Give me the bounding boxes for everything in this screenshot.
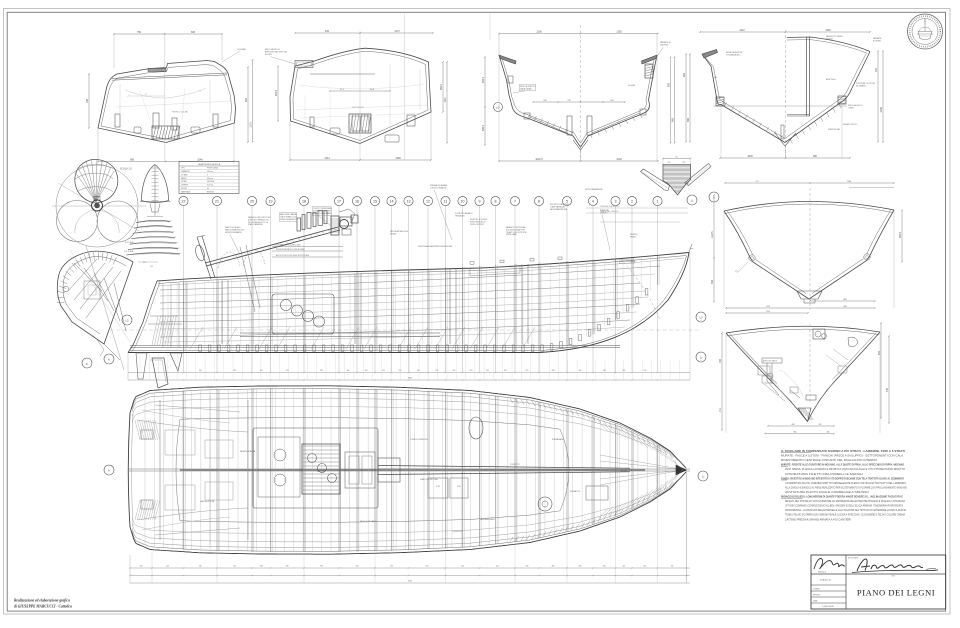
svg-text:15: 15	[373, 200, 377, 204]
svg-text:Ts-60 BML: Ts-60 BML	[237, 49, 246, 51]
svg-text:CATENA: CATENA	[620, 470, 628, 473]
svg-text:PIANO DEI LEGNI: PIANO DEI LEGNI	[857, 588, 935, 598]
svg-text:258: 258	[622, 370, 625, 372]
svg-text:1008: 1008	[880, 107, 883, 113]
svg-text:SALDOBRAZZATURA: SALDOBRAZZATURA	[550, 208, 568, 211]
svg-text:3: 3	[615, 200, 617, 204]
svg-text:RILIEVO DEL PONTELLO CON GIUNZ: RILIEVO DEL PONTELLO CON GIUNZIONE ALL'E…	[785, 500, 905, 503]
svg-text:825: 825	[245, 97, 248, 102]
svg-text:13: 13	[407, 200, 411, 204]
svg-text:60 A RICH.: 60 A RICH.	[660, 43, 669, 46]
svg-text:590 mm: 590 mm	[207, 171, 214, 173]
svg-text:260: 260	[356, 565, 359, 567]
svg-text:605.5: 605.5	[482, 124, 485, 131]
svg-text:PROPULSIVA: PROPULSIVA	[207, 167, 219, 170]
svg-text:B 20: B 20	[457, 486, 461, 488]
svg-text:MOTORE: MOTORE	[317, 471, 326, 473]
svg-text:COMPL.: COMPL.	[848, 107, 855, 109]
svg-text:2: 2	[631, 200, 633, 204]
svg-text:202: 202	[504, 370, 507, 372]
svg-text:PROFILI RIPORTI: PROFILI RIPORTI	[470, 224, 484, 226]
svg-text:16: 16	[355, 200, 359, 204]
svg-text:PIANO DEL MOTORE: PIANO DEL MOTORE	[420, 478, 439, 481]
svg-text:PARATIA STAGNA: PARATIA STAGNA	[240, 450, 256, 453]
svg-text:VETRORESINA - LUCIDATURA DELLE: VETRORESINA - LUCIDATURA DELLE PANNELLE …	[785, 509, 906, 512]
svg-text:340: 340	[286, 565, 289, 567]
svg-text:PRESOLANA: PRESOLANA	[506, 233, 517, 236]
svg-text:S.1.2 A-A: S.1.2 A-A	[125, 241, 134, 244]
svg-text:230: 230	[199, 565, 202, 567]
svg-text:936.5: 936.5	[843, 299, 847, 301]
svg-text:287: 287	[286, 370, 289, 372]
svg-text:DISEGN.: DISEGN.	[813, 588, 820, 590]
svg-text:1220: 1220	[766, 311, 770, 313]
svg-text:130: 130	[150, 266, 153, 268]
svg-text:596: 596	[687, 117, 690, 122]
svg-text:8230: 8230	[408, 581, 412, 583]
svg-text:980: 980	[320, 565, 323, 567]
svg-text:10: 10	[461, 200, 465, 204]
svg-text:MOBILE: MOBILE	[390, 233, 397, 235]
svg-text:CON SUCCHIAROLA: CON SUCCHIAROLA	[430, 186, 447, 189]
svg-text:TIPO: TIPO	[181, 168, 186, 170]
svg-text:225: 225	[435, 370, 438, 372]
svg-text:MURATE: FISSATE ALLE OSSATURE: MURATE: FISSATE ALLE OSSATURE IN MOGANO,…	[781, 464, 904, 467]
svg-text:1040.5: 1040.5	[535, 158, 543, 161]
svg-text:202: 202	[486, 370, 489, 372]
svg-text:VIREMO CON PIL.: VIREMO CON PIL.	[843, 124, 858, 126]
svg-text:LG: LG	[125, 320, 128, 323]
svg-text:TUGA SCORREVOLE: TUGA SCORREVOLE	[410, 438, 429, 441]
svg-text:1273: 1273	[249, 122, 252, 128]
svg-text:9: 9	[479, 200, 481, 204]
svg-text:260: 260	[603, 565, 606, 567]
svg-text:80=DIAM.: 80=DIAM.	[628, 84, 636, 87]
svg-text:POGGIA: POGGIA	[826, 37, 834, 40]
svg-text:MATERIALE: MATERIALE	[181, 190, 191, 193]
svg-text:325: 325	[579, 370, 582, 372]
svg-text:STARO LAMIERINI: STARO LAMIERINI	[248, 223, 263, 226]
svg-text:PROFILO COLMA: PROFILO COLMA	[172, 111, 188, 114]
svg-text:SFIATO: SFIATO	[630, 235, 637, 238]
svg-text:19: 19	[269, 200, 273, 204]
svg-text:APPROV.: APPROV.	[813, 593, 821, 596]
svg-text:MURATE - FASCE A LISTONI - F: MURATE - FASCE A LISTONI - FIANCHI (FASC…	[781, 455, 904, 458]
svg-text:PRESS GUARNIZIONI: PRESS GUARNIZIONI	[280, 218, 298, 221]
svg-text:N° PALE: N° PALE	[181, 173, 188, 176]
svg-text:984.5: 984.5	[440, 83, 443, 90]
svg-text:380: 380	[552, 565, 555, 567]
svg-text:340: 340	[827, 431, 830, 433]
svg-text:FONDO: RIVESTITO IN MOGANO INT: FONDO: RIVESTITO IN MOGANO INTESTATO A V…	[781, 477, 904, 480]
svg-text:SCALA 1:10: SCALA 1:10	[820, 579, 832, 582]
svg-text:448: 448	[886, 387, 889, 392]
svg-text:S.1.2 A-A: S.1.2 A-A	[124, 250, 134, 253]
svg-text:640: 640	[140, 565, 143, 567]
svg-text:271: 271	[755, 181, 758, 183]
svg-text:628: 628	[683, 72, 686, 77]
svg-text:MOZZO: MOZZO	[181, 188, 188, 190]
svg-text:1119.5: 1119.5	[711, 231, 714, 239]
svg-text:202: 202	[470, 370, 473, 372]
svg-text:1: 1	[657, 200, 659, 204]
svg-text:12: 12	[426, 200, 430, 204]
svg-text:196: 196	[643, 370, 646, 372]
svg-text:608: 608	[792, 424, 795, 426]
svg-text:CHIODATURA FILETTI FRA POMELLI: CHIODATURA FILETTI FRA POMELLI E MANALI	[785, 473, 864, 476]
svg-text:300: 300	[347, 370, 350, 372]
svg-text:PRESA MARE: PRESA MARE	[552, 438, 564, 441]
svg-text:420: 420	[496, 565, 499, 567]
svg-text:600: 600	[714, 77, 717, 79]
svg-text:SUPERF.: SUPERF.	[181, 185, 189, 187]
svg-text:22: 22	[182, 200, 186, 204]
svg-text:SERVIZIO A BINARIO: SERVIZIO A BINARIO	[225, 231, 242, 234]
svg-text:728: 728	[719, 358, 722, 363]
svg-text:250: 250	[461, 565, 464, 567]
svg-text:1046: 1046	[197, 158, 203, 161]
svg-text:943: 943	[325, 30, 330, 33]
svg-text:UNA ALLEGATI: UNA ALLEGATI	[520, 87, 532, 90]
svg-text:1040: 1040	[843, 306, 847, 308]
svg-text:VITI DEI COMANDI COMPLESSIVO: VITI DEI COMANDI COMPLESSIVO AL BOLI PAS…	[785, 505, 903, 508]
svg-text:980: 980	[813, 155, 818, 158]
svg-text:194: 194	[382, 370, 385, 372]
svg-text:252: 252	[233, 370, 236, 372]
svg-text:CORRIDOIO: CORRIDOIO	[452, 531, 463, 533]
svg-text:787: 787	[875, 67, 878, 72]
svg-text:194: 194	[365, 370, 368, 372]
svg-text:BRONZO: BRONZO	[207, 191, 215, 193]
svg-text:RIVESTIMENTO CENTRALE: FINCANT: RIVESTIMENTO CENTRALE: FINCANTI DEL PAGL…	[781, 459, 877, 462]
svg-text:PAGLIOLATO AMOV.: PAGLIOLATO AMOV.	[360, 520, 378, 523]
svg-text:B 32: B 32	[436, 486, 440, 488]
svg-text:870: 870	[878, 350, 881, 355]
svg-text:267: 267	[260, 370, 263, 372]
svg-text:LG: LG	[699, 317, 702, 320]
svg-text:319: 319	[819, 424, 822, 426]
svg-text:SERBATOIO: SERBATOIO	[570, 490, 581, 493]
svg-text:430: 430	[671, 565, 674, 567]
svg-text:210: 210	[199, 370, 202, 372]
svg-text:1369: 1369	[825, 29, 831, 32]
svg-text:300: 300	[579, 565, 582, 567]
svg-text:36.5: 36.5	[668, 162, 671, 164]
svg-text:IN LEGNO: IN LEGNO	[873, 40, 882, 42]
svg-text:FILO AVANTI: FILO AVANTI	[856, 84, 866, 87]
svg-text:18: 18	[302, 200, 306, 204]
svg-text:POZZETTO: POZZETTO	[510, 464, 520, 466]
svg-text:985: 985	[130, 158, 135, 161]
svg-text:1380: 1380	[395, 157, 401, 160]
svg-text:210: 210	[417, 370, 420, 372]
svg-text:5: 5	[566, 200, 568, 204]
svg-text:750: 750	[137, 31, 142, 34]
svg-text:7: 7	[514, 200, 516, 204]
svg-text:1342: 1342	[739, 29, 745, 32]
svg-text:250: 250	[390, 565, 393, 567]
svg-text:710: 710	[567, 100, 570, 102]
svg-text:38.7: 38.7	[683, 162, 686, 164]
svg-text:ROTAZ.: ROTAZ.	[181, 180, 188, 183]
svg-text:PASSO: PASSO	[181, 177, 187, 180]
svg-text:530 mm: 530 mm	[207, 178, 214, 180]
svg-text:587.5: 587.5	[899, 231, 902, 238]
svg-text:200: 200	[622, 565, 625, 567]
svg-text:1001: 1001	[444, 97, 447, 103]
svg-text:545: 545	[543, 100, 546, 102]
svg-text:84: 84	[676, 156, 678, 158]
svg-text:TENDA TELAIO SCORREVOLE CAREN: TENDA TELAIO SCORREVOLE CARENA FINALE LU…	[785, 514, 905, 517]
svg-text:TENDALINO: TENDALINO	[455, 214, 465, 217]
svg-text:210: 210	[399, 370, 402, 372]
svg-text:6: 6	[538, 200, 540, 204]
svg-text:ALLA CHIGLIA E BASOLO AL PIEDE: ALLA CHIGLIA E BASOLO AL PIEDE REALIZZAT…	[785, 486, 907, 489]
svg-text:1760: 1760	[259, 565, 263, 567]
svg-text:711: 711	[719, 407, 722, 411]
svg-text:PIAZZONI CAB.: PIAZZONI CAB.	[828, 128, 841, 131]
svg-text:907.5: 907.5	[275, 89, 278, 96]
svg-text:861: 861	[794, 431, 797, 433]
svg-text:1272: 1272	[394, 30, 400, 33]
svg-text:LATTINE PRESINA GRAND ARMATA A: LATTINE PRESINA GRAND ARMATA A PIU CANTI…	[785, 518, 851, 521]
svg-text:1090: 1090	[616, 158, 622, 161]
svg-text:4: 4	[592, 200, 594, 204]
svg-text:25/27 SPESS. PLANCIA LAVORATA: 25/27 SPESS. PLANCIA LAVORATA E RIFINITA…	[785, 468, 905, 471]
svg-text:DI GUARDIA LATO: DI GUARDIA LATO	[726, 53, 741, 56]
svg-text:310: 310	[603, 370, 606, 372]
svg-text:430: 430	[526, 565, 529, 567]
svg-text:1005: 1005	[747, 155, 753, 158]
svg-text:8: 8	[495, 200, 497, 204]
svg-text:2.4: 2.4	[199, 91, 201, 93]
svg-text:LG: LG	[496, 105, 499, 109]
svg-text:1344: 1344	[324, 157, 330, 160]
svg-text:ASTA TS=50: ASTA TS=50	[826, 78, 836, 81]
svg-text:202: 202	[453, 370, 456, 372]
svg-text:11: 11	[444, 200, 448, 204]
svg-text:946.5: 946.5	[482, 76, 485, 83]
svg-text:9-9601-29648: 9-9601-29648	[822, 606, 833, 608]
svg-text:1206: 1206	[536, 30, 542, 33]
svg-text:280: 280	[552, 370, 555, 372]
svg-text:di GIUSEPPE MARCUCCI - Cattoli: di GIUSEPPE MARCUCCI - Cattolica	[14, 605, 72, 609]
svg-text:DIAMETRO: DIAMETRO	[181, 170, 191, 173]
svg-text:17: 17	[337, 200, 341, 204]
svg-text:FASCIA MOGANO: FASCIA MOGANO	[480, 518, 496, 521]
svg-text:2.2: 2.2	[145, 94, 147, 96]
svg-text:900: 900	[667, 82, 670, 87]
svg-text:VETRO PARABREZZA: VETRO PARABREZZA	[585, 188, 603, 191]
svg-text:965: 965	[671, 117, 674, 122]
svg-text:1220: 1220	[766, 306, 770, 308]
svg-text:ASBESTOS BLOMBERG: ASBESTOS BLOMBERG	[313, 212, 333, 215]
svg-text:618: 618	[610, 100, 613, 102]
svg-text:3: 3	[207, 174, 208, 176]
svg-text:GAVONE POPPA: GAVONE POPPA	[200, 500, 215, 503]
svg-text:200: 200	[166, 565, 169, 567]
svg-text:Realizzazione ed elaborazione: Realizzazione ed elaborazione grafica	[14, 599, 70, 603]
svg-text:798: 798	[86, 98, 89, 103]
svg-text:CARATTERISTICHE ELICA: CARATTERISTICHE ELICA	[198, 163, 221, 166]
svg-text:500: 500	[711, 279, 714, 284]
svg-text:1355: 1355	[616, 30, 622, 33]
svg-text:8230: 8230	[408, 378, 412, 380]
svg-text:AVVITATURA PULITO FACILE CORR: AVVITATURA PULITO FACILE CORREGGE A SMUS…	[785, 491, 869, 494]
svg-text:830: 830	[191, 31, 196, 34]
svg-text:750: 750	[233, 565, 236, 567]
svg-text:0.18 mq: 0.18 mq	[207, 185, 213, 187]
svg-text:420: 420	[643, 565, 646, 567]
svg-text:287: 287	[320, 370, 323, 372]
svg-text:1260: 1260	[847, 181, 851, 183]
svg-text:DESTRA: DESTRA	[207, 180, 215, 183]
svg-text:60: 60	[207, 188, 209, 190]
svg-text:225: 225	[526, 370, 529, 372]
svg-text:250: 250	[426, 565, 429, 567]
svg-text:20: 20	[250, 200, 254, 204]
svg-text:470: 470	[143, 262, 146, 264]
svg-text:21: 21	[215, 200, 219, 204]
svg-text:SCALA 1:5: SCALA 1:5	[120, 168, 132, 171]
svg-text:1968: 1968	[891, 576, 895, 578]
svg-text:14: 14	[390, 200, 394, 204]
svg-text:A FORMATURA SUI PIU VARIABILI: A FORMATURA SUI PIU VARIABILI DIRITTO SO…	[785, 482, 906, 485]
svg-text:SICURO: SICURO	[265, 54, 273, 56]
